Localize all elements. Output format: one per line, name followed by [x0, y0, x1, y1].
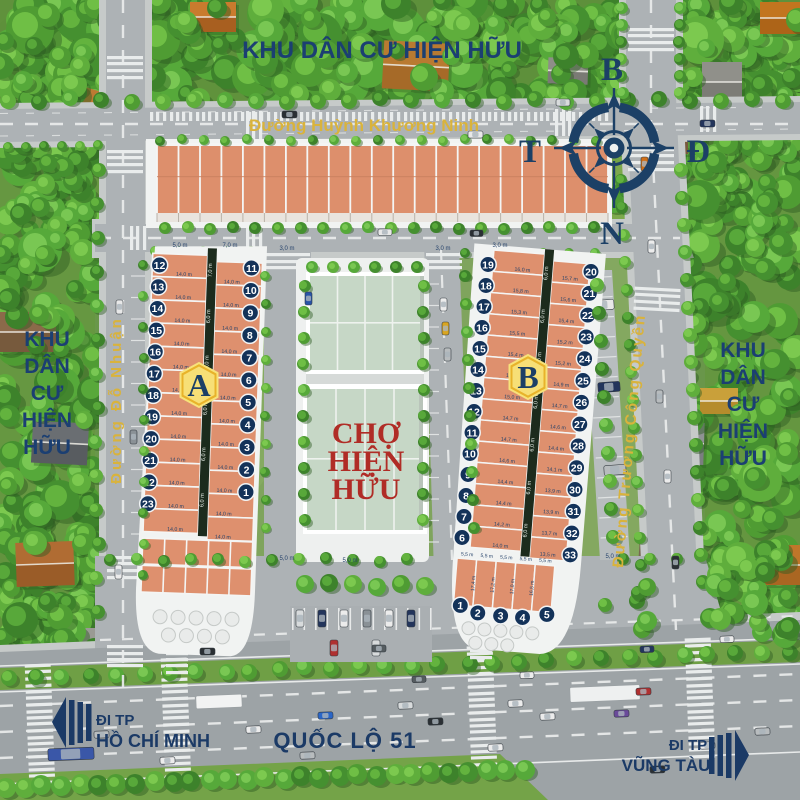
svg-text:15,4 m: 15,4 m [558, 318, 574, 325]
svg-text:17,4 m: 17,4 m [470, 576, 477, 592]
svg-text:14,9 m: 14,9 m [553, 382, 569, 389]
svg-text:6: 6 [459, 532, 465, 544]
svg-text:14,4 m: 14,4 m [495, 500, 511, 507]
svg-text:5,0 m: 5,0 m [342, 558, 357, 564]
svg-text:DÂN: DÂN [24, 354, 70, 378]
svg-text:14: 14 [152, 303, 164, 315]
svg-text:5,5 m: 5,5 m [461, 551, 474, 558]
svg-text:17: 17 [148, 368, 160, 380]
svg-text:1: 1 [457, 600, 464, 612]
svg-text:14,2 m: 14,2 m [494, 522, 510, 529]
svg-text:13: 13 [153, 282, 165, 294]
svg-text:15,5 m: 15,5 m [509, 330, 525, 337]
svg-text:6,0 m: 6,0 m [540, 309, 547, 324]
svg-text:23: 23 [580, 332, 592, 344]
svg-text:14,0 m: 14,0 m [216, 511, 232, 518]
svg-text:DÂN: DÂN [720, 365, 766, 389]
svg-text:15,3 m: 15,3 m [511, 309, 527, 316]
svg-text:14,0 m: 14,0 m [221, 372, 237, 379]
svg-text:14,0 m: 14,0 m [176, 272, 192, 279]
svg-text:KHU: KHU [24, 328, 70, 351]
svg-text:A: A [187, 367, 210, 403]
svg-text:T: T [519, 134, 541, 170]
svg-text:CƯ: CƯ [31, 382, 64, 405]
svg-text:33: 33 [564, 550, 576, 562]
svg-text:14,7 m: 14,7 m [501, 437, 517, 444]
svg-text:HỮU: HỮU [332, 472, 401, 506]
svg-text:8: 8 [247, 330, 253, 342]
svg-text:5: 5 [245, 397, 251, 409]
svg-text:20: 20 [145, 433, 157, 445]
svg-text:22: 22 [582, 310, 594, 322]
svg-text:3: 3 [244, 442, 250, 454]
svg-text:5,5 m: 5,5 m [500, 555, 513, 562]
svg-text:16,5 m: 16,5 m [529, 580, 536, 596]
svg-text:14,0 m: 14,0 m [171, 411, 187, 418]
svg-text:HIỆN: HIỆN [22, 408, 72, 432]
svg-text:19: 19 [482, 259, 494, 271]
svg-text:Đường Đỗ Nhuận: Đường Đỗ Nhuận [108, 316, 125, 484]
svg-text:17: 17 [478, 301, 490, 313]
svg-text:20: 20 [585, 266, 597, 278]
svg-text:11: 11 [466, 427, 477, 439]
svg-text:Đường Huỳnh Khương Ninh: Đường Huỳnh Khương Ninh [249, 116, 479, 135]
svg-text:7: 7 [246, 352, 252, 364]
svg-text:2: 2 [474, 607, 481, 619]
svg-text:6,0 m: 6,0 m [199, 493, 205, 507]
svg-text:6,0 m: 6,0 m [543, 266, 550, 281]
svg-text:28: 28 [572, 441, 584, 453]
svg-text:ĐI TP: ĐI TP [669, 737, 707, 754]
svg-text:14,0 m: 14,0 m [219, 418, 235, 425]
svg-text:N: N [600, 216, 624, 252]
svg-text:13,9 m: 13,9 m [545, 488, 561, 495]
svg-text:14,0 m: 14,0 m [174, 318, 190, 325]
svg-text:B: B [517, 359, 538, 395]
svg-text:14,0 m: 14,0 m [216, 488, 232, 495]
svg-text:27: 27 [574, 419, 586, 431]
svg-text:14,0 m: 14,0 m [174, 341, 190, 348]
svg-text:14,0 m: 14,0 m [492, 543, 508, 550]
svg-text:15,2 m: 15,2 m [557, 339, 573, 346]
svg-text:12: 12 [154, 260, 166, 272]
svg-text:7: 7 [461, 511, 467, 523]
svg-text:3,0 m: 3,0 m [492, 243, 507, 249]
svg-text:30: 30 [569, 484, 581, 496]
svg-text:4: 4 [245, 420, 251, 432]
svg-text:14,0 m: 14,0 m [175, 295, 191, 302]
svg-text:14,1 m: 14,1 m [546, 467, 562, 474]
svg-text:14,0 m: 14,0 m [223, 302, 239, 309]
svg-text:6,0 m: 6,0 m [206, 309, 212, 323]
svg-text:6,0 m: 6,0 m [522, 523, 529, 538]
svg-text:HỒ CHÍ MINH: HỒ CHÍ MINH [96, 730, 210, 751]
svg-text:25: 25 [577, 375, 589, 387]
svg-text:KHU DÂN CƯ HIỆN HỮU: KHU DÂN CƯ HIỆN HỮU [242, 36, 522, 64]
svg-text:3,0 m: 3,0 m [435, 246, 450, 252]
svg-text:13,9 m: 13,9 m [543, 509, 559, 516]
svg-text:17,0 m: 17,0 m [509, 579, 516, 595]
svg-text:16: 16 [476, 322, 488, 334]
svg-text:26: 26 [576, 397, 588, 409]
svg-text:KHU: KHU [720, 339, 766, 362]
svg-text:2: 2 [244, 464, 250, 476]
svg-text:14,0 m: 14,0 m [168, 503, 184, 510]
svg-text:7,0 m: 7,0 m [222, 243, 237, 249]
svg-text:B: B [601, 52, 623, 88]
svg-text:17,2 m: 17,2 m [490, 577, 497, 593]
svg-text:14,0 m: 14,0 m [215, 534, 231, 541]
svg-text:14,0 m: 14,0 m [170, 434, 186, 441]
svg-text:6,0 m: 6,0 m [529, 437, 536, 452]
svg-text:14,0 m: 14,0 m [170, 457, 186, 464]
svg-text:18: 18 [480, 280, 492, 292]
svg-text:QUỐC LỘ 51: QUỐC LỘ 51 [273, 727, 416, 753]
svg-text:6,0 m: 6,0 m [201, 447, 207, 461]
svg-text:HỮU: HỮU [23, 435, 71, 459]
svg-text:16: 16 [149, 347, 161, 359]
svg-text:10: 10 [245, 285, 257, 297]
svg-text:14,6 m: 14,6 m [550, 424, 566, 431]
svg-text:CƯ: CƯ [727, 393, 760, 416]
svg-text:9: 9 [247, 308, 253, 320]
svg-text:14,4 m: 14,4 m [497, 479, 513, 486]
svg-text:5,5 m: 5,5 m [480, 553, 493, 560]
svg-text:14,0 m: 14,0 m [167, 527, 183, 534]
svg-text:14,0 m: 14,0 m [221, 349, 237, 356]
svg-text:5,0 m: 5,0 m [172, 243, 187, 249]
svg-text:Đ: Đ [686, 134, 710, 170]
svg-text:11: 11 [246, 263, 257, 275]
svg-text:5,0 m: 5,0 m [279, 556, 294, 562]
svg-text:15,2 m: 15,2 m [555, 361, 571, 368]
svg-text:15,8 m: 15,8 m [513, 288, 529, 295]
svg-text:14,6 m: 14,6 m [499, 458, 515, 465]
svg-text:4: 4 [519, 612, 526, 624]
svg-text:14,7 m: 14,7 m [551, 403, 567, 410]
svg-text:31: 31 [568, 506, 580, 518]
svg-text:10: 10 [464, 448, 476, 460]
svg-text:HIỆN: HIỆN [718, 419, 768, 443]
svg-text:5,5 m: 5,5 m [539, 558, 552, 565]
svg-text:1: 1 [243, 487, 249, 499]
svg-text:13,7 m: 13,7 m [541, 530, 557, 537]
svg-text:15: 15 [474, 343, 486, 355]
svg-text:14,0 m: 14,0 m [218, 442, 234, 449]
svg-text:16,0 m: 16,0 m [514, 267, 530, 274]
svg-text:15: 15 [150, 325, 162, 337]
svg-text:14,0 m: 14,0 m [169, 480, 185, 487]
svg-text:VŨNG TÀU: VŨNG TÀU [622, 755, 711, 775]
svg-text:32: 32 [566, 528, 578, 540]
svg-text:6,0 m: 6,0 m [526, 480, 533, 495]
svg-text:14,0 m: 14,0 m [220, 395, 236, 402]
svg-text:14,0 m: 14,0 m [217, 465, 233, 472]
svg-text:14,0 m: 14,0 m [222, 326, 238, 333]
svg-text:14,7 m: 14,7 m [502, 415, 518, 422]
svg-text:29: 29 [571, 463, 583, 475]
svg-text:14,0 m: 14,0 m [224, 279, 240, 286]
svg-text:3,0 m: 3,0 m [279, 246, 294, 252]
svg-text:7,0 m: 7,0 m [207, 263, 213, 277]
svg-text:14,4 m: 14,4 m [548, 445, 564, 452]
svg-text:15,7 m: 15,7 m [562, 276, 578, 283]
svg-text:5,5 m: 5,5 m [519, 556, 532, 563]
svg-text:3: 3 [497, 610, 504, 622]
svg-text:5: 5 [543, 609, 550, 621]
svg-text:15,0 m: 15,0 m [504, 394, 520, 401]
svg-text:14: 14 [472, 364, 484, 376]
svg-text:24: 24 [579, 354, 591, 366]
svg-text:HỮU: HỮU [719, 446, 767, 470]
svg-text:6: 6 [246, 375, 252, 387]
svg-text:ĐI TP: ĐI TP [96, 712, 134, 729]
svg-text:15,6 m: 15,6 m [560, 297, 576, 304]
